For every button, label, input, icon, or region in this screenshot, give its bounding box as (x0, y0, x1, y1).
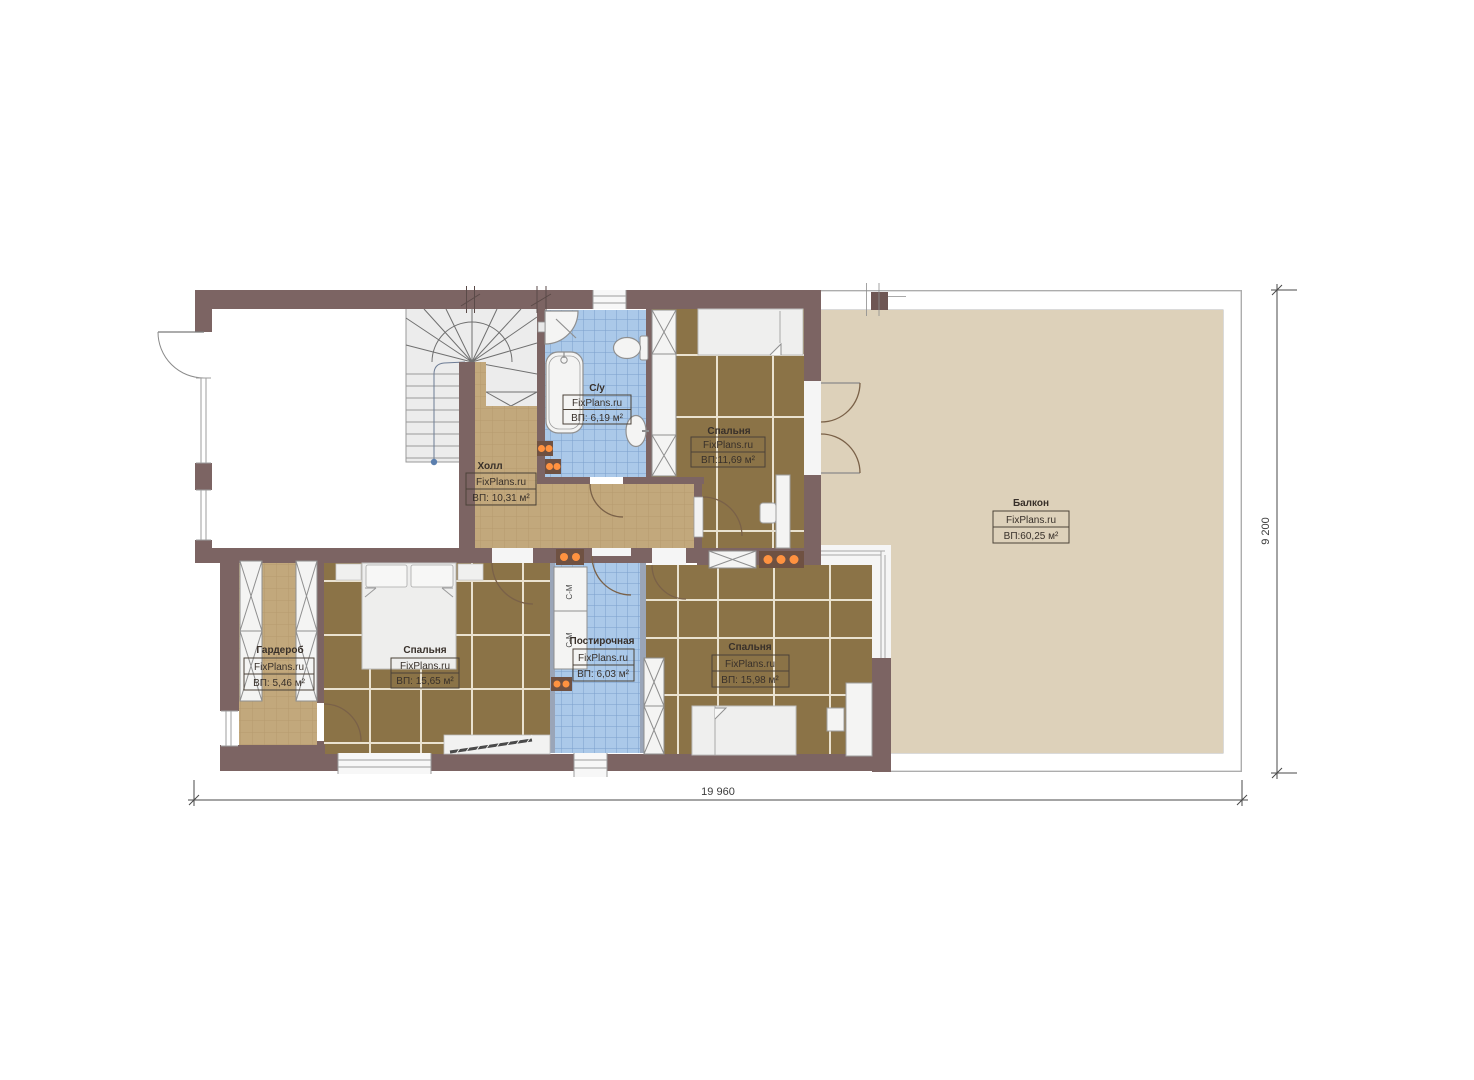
svg-text:FixPlans.ru: FixPlans.ru (572, 398, 622, 409)
svg-text:19 960: 19 960 (701, 786, 735, 798)
svg-text:FixPlans.ru: FixPlans.ru (1006, 515, 1056, 526)
svg-text:ВП: 15,65 м²: ВП: 15,65 м² (396, 676, 454, 687)
svg-text:Балкон: Балкон (1013, 498, 1049, 509)
svg-text:ВП: 10,31 м²: ВП: 10,31 м² (472, 493, 530, 504)
svg-text:FixPlans.ru: FixPlans.ru (725, 659, 775, 670)
svg-text:Постирочная: Постирочная (570, 636, 635, 647)
svg-text:FixPlans.ru: FixPlans.ru (578, 653, 628, 664)
svg-text:Спальня: Спальня (728, 642, 771, 653)
svg-text:FixPlans.ru: FixPlans.ru (254, 662, 304, 673)
svg-text:Спальня: Спальня (707, 426, 750, 437)
svg-text:С-М: С-М (565, 584, 574, 599)
svg-text:Спальня: Спальня (403, 645, 446, 656)
svg-text:ВП:11,69 м²: ВП:11,69 м² (701, 455, 756, 466)
svg-text:ВП: 6,03 м²: ВП: 6,03 м² (577, 669, 630, 680)
svg-text:ВП: 6,19 м²: ВП: 6,19 м² (571, 413, 624, 424)
svg-text:9 200: 9 200 (1260, 517, 1272, 545)
svg-text:FixPlans.ru: FixPlans.ru (703, 440, 753, 451)
svg-text:Холл: Холл (477, 461, 502, 472)
svg-text:FixPlans.ru: FixPlans.ru (476, 477, 526, 488)
svg-text:FixPlans.ru: FixPlans.ru (400, 661, 450, 672)
svg-text:Гардероб: Гардероб (256, 644, 303, 656)
svg-text:ВП:60,25 м²: ВП:60,25 м² (1004, 531, 1059, 542)
svg-text:ВП: 5,46 м²: ВП: 5,46 м² (253, 678, 306, 689)
svg-text:ВП: 15,98 м²: ВП: 15,98 м² (721, 675, 779, 686)
svg-text:С/у: С/у (589, 383, 605, 394)
